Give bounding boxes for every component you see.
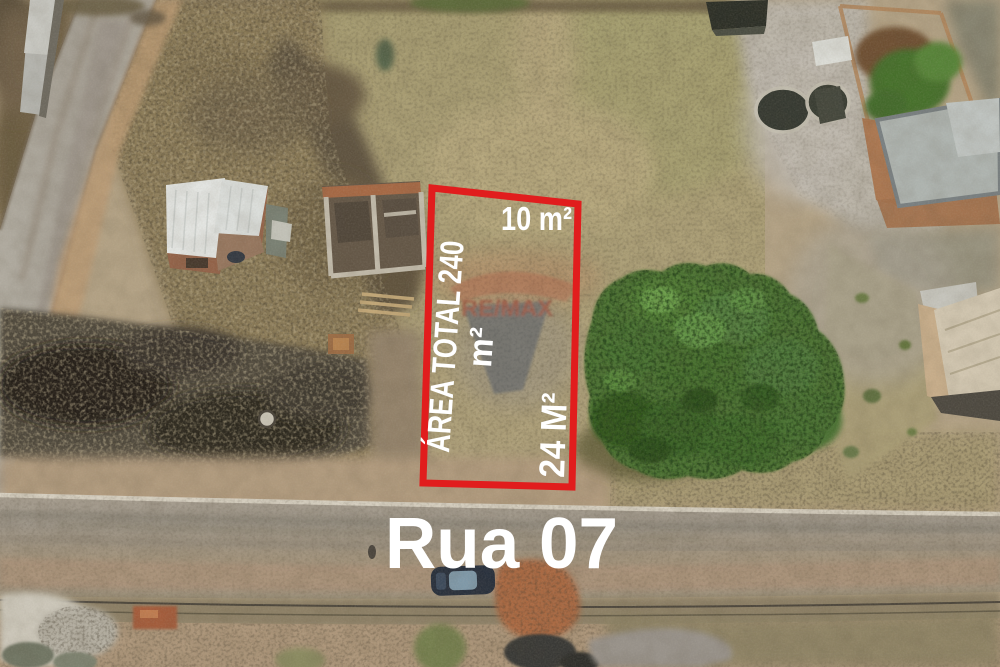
svg-text:m²: m² [461,326,502,369]
svg-text:10 m²: 10 m² [501,200,572,237]
svg-text:24 M²: 24 M² [531,392,575,478]
svg-text:Rua 07: Rua 07 [385,504,618,584]
svg-text:RE/MAX: RE/MAX [461,295,554,321]
